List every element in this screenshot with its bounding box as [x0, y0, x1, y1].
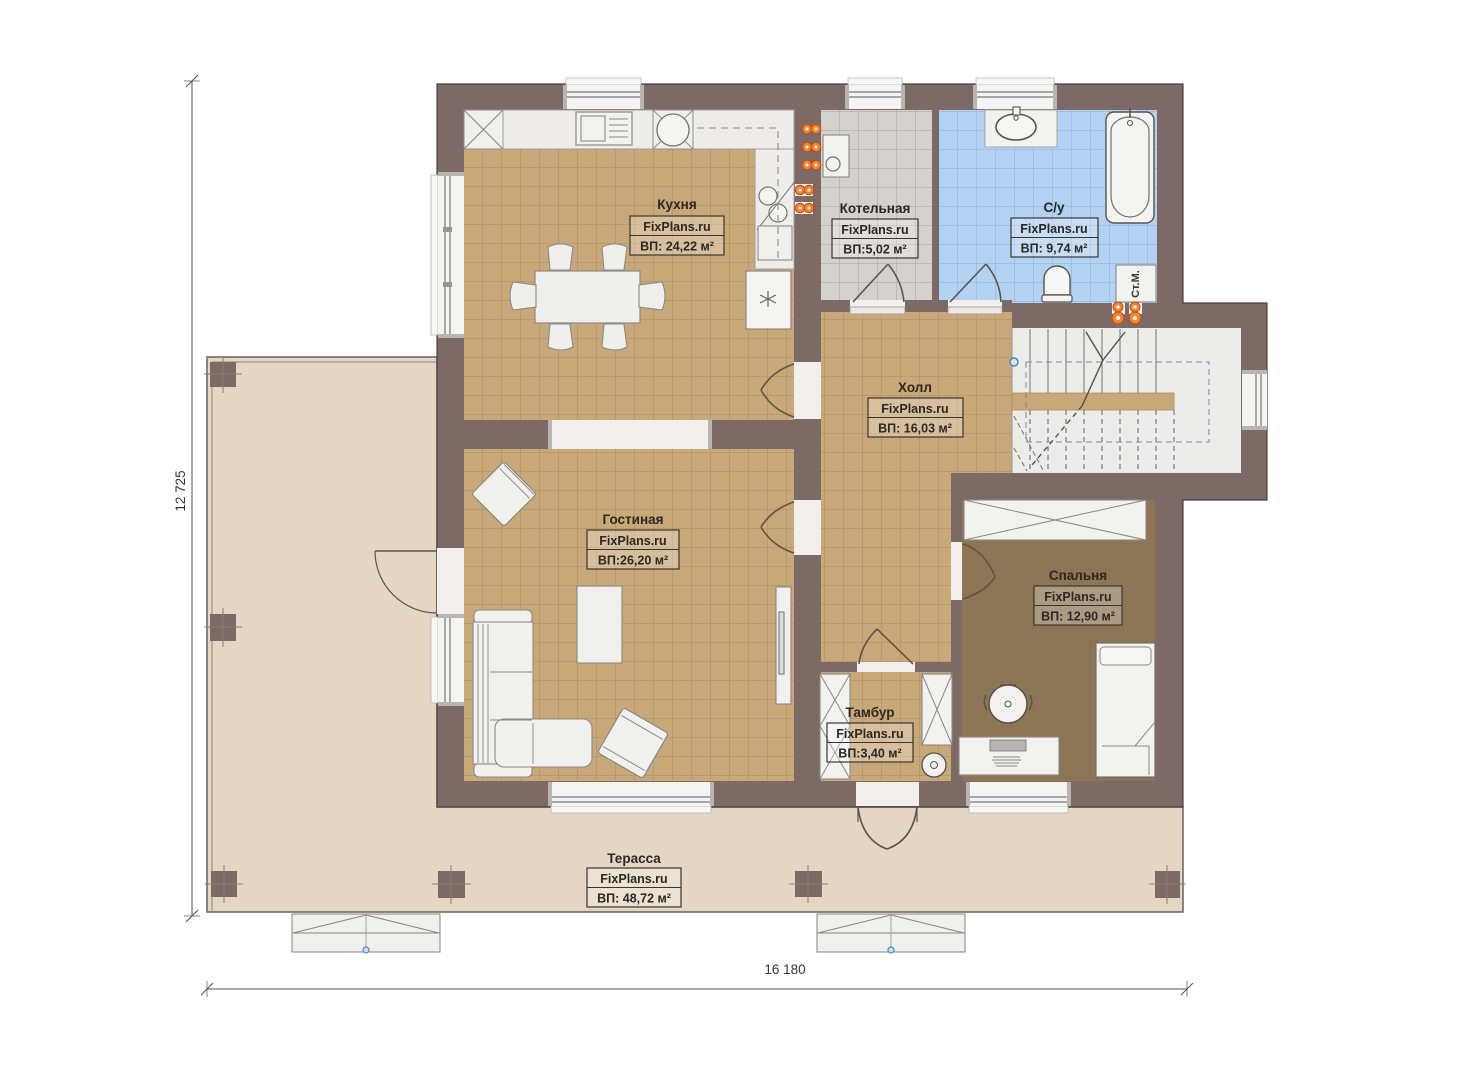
svg-text:ВП:5,02 м²: ВП:5,02 м²	[843, 243, 906, 257]
svg-text:Холл: Холл	[898, 380, 932, 395]
svg-text:FixPlans.ru: FixPlans.ru	[600, 872, 667, 886]
svg-text:16 180: 16 180	[764, 962, 805, 977]
svg-text:FixPlans.ru: FixPlans.ru	[1044, 590, 1111, 604]
svg-text:ВП:3,40 м²: ВП:3,40 м²	[838, 747, 901, 761]
svg-text:ВП: 12,90 м²: ВП: 12,90 м²	[1041, 610, 1115, 624]
svg-text:С/у: С/у	[1043, 200, 1065, 215]
svg-text:Ст.М.: Ст.М.	[1130, 270, 1142, 298]
svg-text:ВП: 24,22 м²: ВП: 24,22 м²	[640, 240, 714, 254]
svg-text:Тамбур: Тамбур	[846, 705, 895, 720]
svg-text:FixPlans.ru: FixPlans.ru	[643, 220, 710, 234]
svg-text:Терасса: Терасса	[607, 851, 661, 866]
svg-text:Спальня: Спальня	[1049, 568, 1107, 583]
svg-text:Кухня: Кухня	[657, 197, 696, 212]
svg-text:ВП: 16,03 м²: ВП: 16,03 м²	[878, 422, 952, 436]
svg-text:Гостиная: Гостиная	[602, 512, 663, 527]
svg-text:Котельная: Котельная	[840, 201, 911, 216]
svg-text:FixPlans.ru: FixPlans.ru	[1020, 222, 1087, 236]
svg-text:FixPlans.ru: FixPlans.ru	[836, 727, 903, 741]
svg-text:ВП: 48,72 м²: ВП: 48,72 м²	[597, 892, 671, 906]
svg-text:ВП: 9,74 м²: ВП: 9,74 м²	[1021, 242, 1088, 256]
svg-text:FixPlans.ru: FixPlans.ru	[599, 534, 666, 548]
svg-text:ВП:26,20 м²: ВП:26,20 м²	[598, 554, 668, 568]
svg-text:FixPlans.ru: FixPlans.ru	[841, 223, 908, 237]
svg-text:12 725: 12 725	[173, 470, 188, 511]
svg-text:FixPlans.ru: FixPlans.ru	[881, 402, 948, 416]
